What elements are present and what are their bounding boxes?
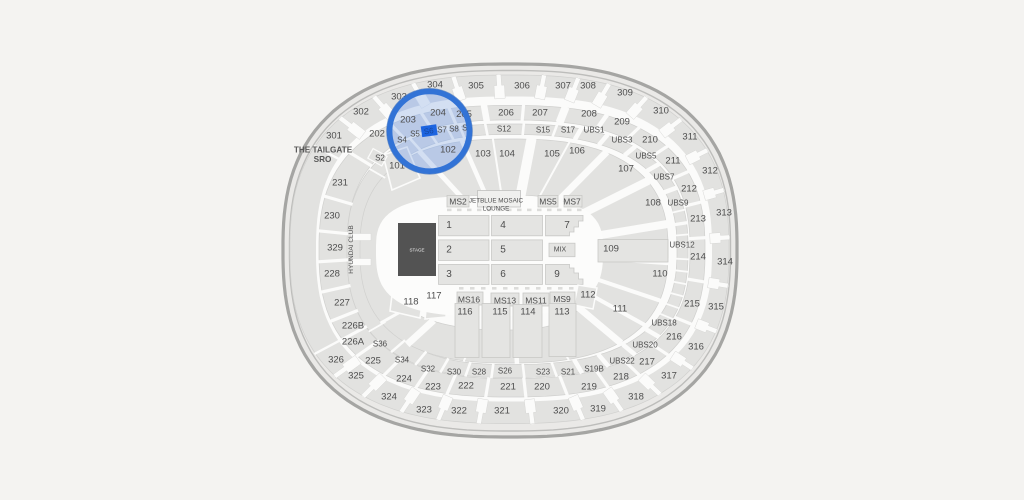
- svg-text:MIX: MIX: [554, 247, 567, 254]
- svg-text:308: 308: [580, 81, 596, 92]
- svg-text:S21: S21: [561, 368, 576, 377]
- svg-text:116: 116: [457, 307, 472, 318]
- svg-text:209: 209: [614, 117, 630, 128]
- svg-text:S2: S2: [375, 154, 385, 163]
- svg-text:323: 323: [416, 405, 432, 416]
- svg-text:108: 108: [645, 198, 661, 209]
- svg-text:S30: S30: [447, 368, 462, 377]
- svg-text:6: 6: [500, 269, 506, 280]
- svg-text:S32: S32: [421, 365, 436, 374]
- svg-text:S19B: S19B: [584, 365, 604, 374]
- svg-text:S8: S8: [449, 125, 459, 134]
- svg-text:115: 115: [492, 307, 507, 318]
- svg-text:S15: S15: [536, 126, 551, 135]
- svg-text:MS13: MS13: [494, 296, 516, 306]
- svg-text:222: 222: [458, 381, 474, 392]
- svg-text:226A: 226A: [342, 337, 365, 348]
- svg-text:202: 202: [369, 129, 385, 140]
- svg-text:309: 309: [617, 88, 633, 99]
- svg-text:231: 231: [332, 178, 348, 189]
- svg-text:218: 218: [613, 372, 629, 383]
- svg-text:S17: S17: [561, 126, 576, 135]
- svg-text:S6: S6: [423, 126, 434, 136]
- svg-text:MS2: MS2: [449, 197, 467, 207]
- svg-text:310: 310: [653, 106, 669, 117]
- svg-text:MS16: MS16: [458, 295, 480, 305]
- svg-text:212: 212: [681, 184, 697, 195]
- svg-text:UBS1: UBS1: [584, 126, 605, 135]
- svg-text:207: 207: [532, 108, 548, 119]
- svg-text:326: 326: [328, 355, 344, 366]
- svg-text:325: 325: [348, 371, 364, 382]
- svg-text:MS5: MS5: [539, 197, 557, 207]
- svg-text:204: 204: [430, 108, 446, 119]
- svg-text:105: 105: [544, 149, 560, 160]
- svg-text:109: 109: [603, 244, 619, 255]
- svg-text:UBS22: UBS22: [609, 357, 635, 366]
- svg-text:211: 211: [665, 156, 680, 167]
- svg-text:UBS9: UBS9: [668, 199, 689, 208]
- svg-text:213: 213: [690, 214, 706, 225]
- svg-text:203: 203: [400, 115, 416, 126]
- svg-text:1: 1: [446, 220, 452, 231]
- svg-text:S26: S26: [498, 367, 513, 376]
- svg-text:217: 217: [639, 357, 655, 368]
- svg-text:THE TAILGATE: THE TAILGATE: [294, 146, 353, 155]
- svg-text:220: 220: [534, 382, 550, 393]
- svg-text:306: 306: [514, 81, 530, 92]
- svg-text:312: 312: [702, 166, 718, 177]
- svg-text:111: 111: [613, 304, 627, 315]
- svg-text:316: 316: [688, 342, 704, 353]
- svg-text:208: 208: [581, 109, 597, 120]
- svg-text:317: 317: [661, 371, 677, 382]
- svg-text:215: 215: [684, 299, 700, 310]
- svg-text:S23: S23: [536, 368, 551, 377]
- svg-text:224: 224: [396, 374, 412, 385]
- svg-text:314: 314: [717, 257, 733, 268]
- svg-text:MS11: MS11: [525, 296, 547, 306]
- svg-text:UBS12: UBS12: [669, 241, 695, 250]
- svg-text:MS9: MS9: [553, 294, 571, 304]
- svg-text:UBS3: UBS3: [612, 136, 633, 145]
- svg-text:S28: S28: [472, 368, 487, 377]
- svg-text:230: 230: [324, 211, 340, 222]
- svg-text:S7: S7: [437, 126, 447, 135]
- svg-text:UBS20: UBS20: [632, 341, 658, 350]
- svg-text:7: 7: [564, 220, 570, 231]
- svg-text:228: 228: [324, 269, 340, 280]
- svg-text:225: 225: [365, 356, 381, 367]
- svg-text:S36: S36: [373, 340, 388, 349]
- svg-text:319: 319: [590, 404, 606, 415]
- svg-text:110: 110: [652, 269, 667, 280]
- svg-text:112: 112: [580, 290, 595, 301]
- svg-text:216: 216: [666, 332, 682, 343]
- svg-text:JETBLUE MOSAIC: JETBLUE MOSAIC: [469, 198, 524, 205]
- svg-text:206: 206: [498, 108, 514, 119]
- svg-text:307: 307: [555, 81, 571, 92]
- svg-text:227: 227: [334, 298, 350, 309]
- svg-text:305: 305: [468, 81, 484, 92]
- svg-text:320: 320: [553, 406, 569, 417]
- svg-text:9: 9: [554, 269, 560, 280]
- svg-text:103: 103: [475, 149, 491, 160]
- svg-text:4: 4: [500, 220, 506, 231]
- svg-text:223: 223: [425, 382, 441, 393]
- svg-text:S34: S34: [395, 356, 410, 365]
- svg-text:301: 301: [326, 131, 342, 142]
- svg-text:SRO: SRO: [314, 155, 332, 164]
- svg-text:5: 5: [500, 245, 506, 256]
- svg-text:S12: S12: [497, 125, 512, 134]
- svg-text:322: 322: [451, 406, 467, 417]
- svg-text:102: 102: [440, 145, 456, 156]
- svg-text:HYUNDAI CLUB: HYUNDAI CLUB: [348, 225, 355, 273]
- svg-text:MS7: MS7: [563, 197, 581, 207]
- svg-text:329: 329: [327, 243, 343, 254]
- svg-text:118: 118: [403, 297, 418, 308]
- svg-text:226B: 226B: [342, 321, 364, 332]
- svg-text:UBS18: UBS18: [651, 319, 677, 328]
- svg-text:113: 113: [554, 307, 569, 318]
- svg-text:219: 219: [581, 382, 597, 393]
- svg-text:LOUNGE: LOUNGE: [483, 206, 510, 213]
- svg-text:107: 107: [618, 164, 634, 175]
- svg-text:106: 106: [569, 146, 585, 157]
- svg-text:311: 311: [682, 132, 697, 143]
- svg-text:302: 302: [353, 107, 369, 118]
- svg-text:221: 221: [500, 382, 516, 393]
- svg-text:2: 2: [446, 245, 452, 256]
- svg-text:STAGE: STAGE: [410, 248, 425, 253]
- svg-text:315: 315: [708, 302, 724, 313]
- svg-text:313: 313: [716, 208, 732, 219]
- svg-text:3: 3: [446, 269, 452, 280]
- svg-text:318: 318: [628, 392, 644, 403]
- svg-text:214: 214: [690, 252, 706, 263]
- svg-text:114: 114: [520, 307, 535, 318]
- svg-text:324: 324: [381, 392, 397, 403]
- svg-text:S5: S5: [410, 130, 420, 139]
- svg-text:117: 117: [426, 291, 441, 302]
- svg-text:104: 104: [499, 149, 515, 160]
- svg-text:321: 321: [494, 406, 510, 417]
- svg-text:UBS5: UBS5: [636, 152, 657, 161]
- svg-text:UBS7: UBS7: [654, 173, 675, 182]
- svg-text:S4: S4: [397, 136, 407, 145]
- svg-text:210: 210: [642, 135, 658, 146]
